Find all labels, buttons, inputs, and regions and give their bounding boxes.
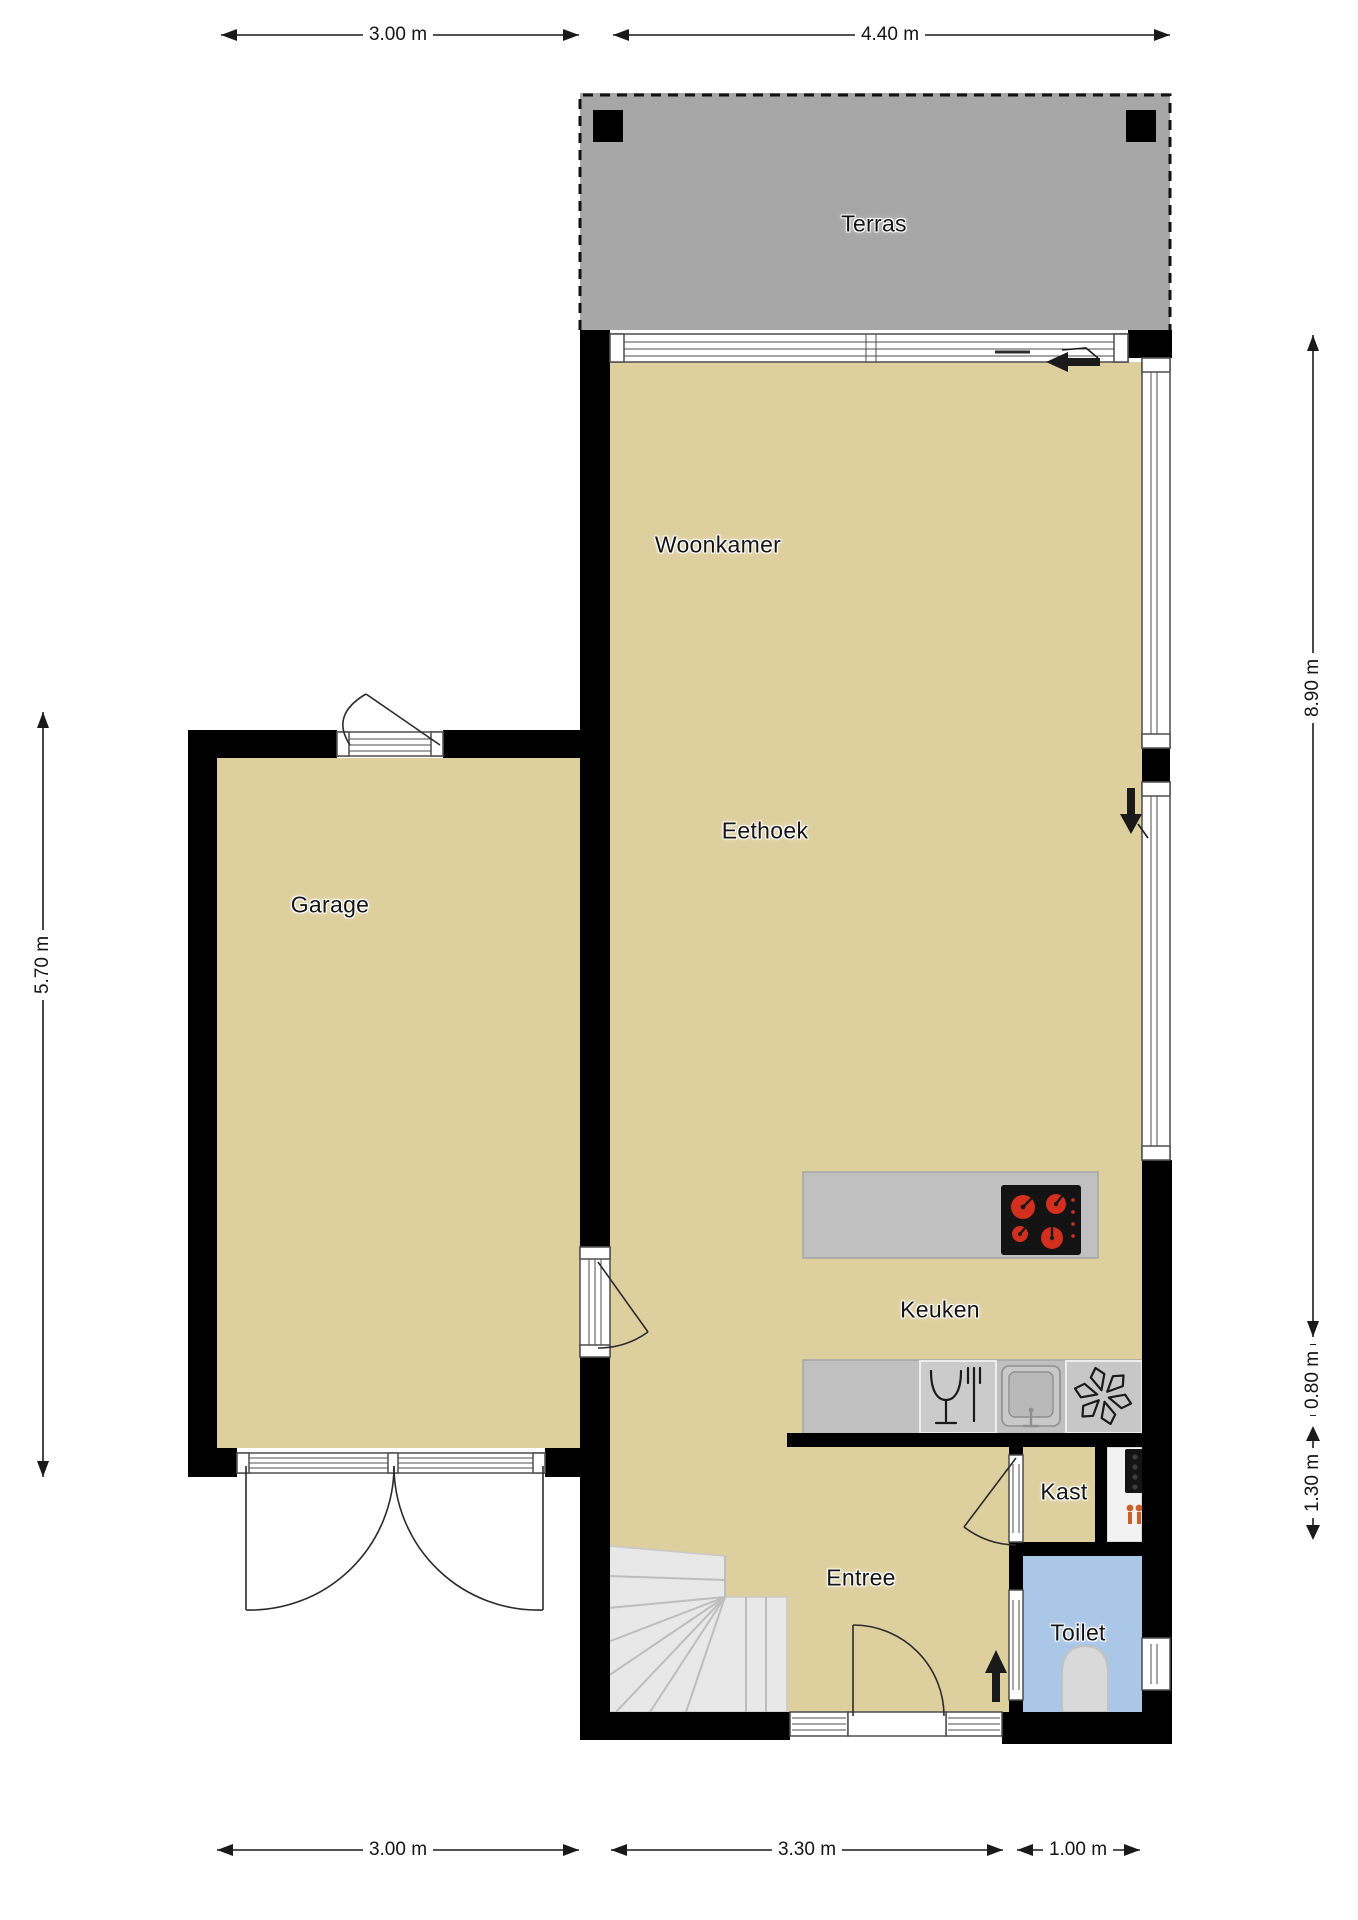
garage-back-door [337, 694, 443, 756]
room-label-keuken: Keuken [900, 1297, 980, 1324]
dim-bottom-mid: 3.30 m [772, 1839, 842, 1861]
garage-double-door [237, 1453, 545, 1610]
dim-top-left: 3.00 m [363, 24, 433, 46]
sliding-door-window [610, 334, 1128, 362]
right-window-upper [1142, 358, 1170, 748]
entree-window-left [790, 1712, 848, 1736]
dim-bottom-right: 1.00 m [1043, 1839, 1113, 1861]
entree-window-right [946, 1712, 1002, 1736]
room-label-eethoek: Eethoek [722, 818, 809, 845]
dim-right-130: 1.30 m [1302, 1448, 1324, 1518]
room-label-kast: Kast [1040, 1479, 1087, 1506]
dim-right-080: 0.80 m [1302, 1345, 1324, 1415]
floor-plan: Terras Woonkamer Eethoek Garage Keuken K… [0, 0, 1358, 1920]
dim-bottom-left: 3.00 m [363, 1839, 433, 1861]
cooktop-icon [1001, 1185, 1081, 1255]
main-floor [610, 362, 1142, 1712]
garage-floor [217, 758, 580, 1448]
boiler-icon [1125, 1449, 1144, 1493]
floor-plan-drawing [0, 0, 1358, 1920]
room-label-toilet: Toilet [1050, 1620, 1106, 1647]
room-label-entree: Entree [826, 1565, 896, 1592]
sink-icon [1002, 1366, 1060, 1426]
kitchen-counter [803, 1360, 1142, 1434]
room-label-woonkamer: Woonkamer [655, 532, 781, 559]
toilet-window [1142, 1638, 1170, 1690]
toilet-icon [1062, 1646, 1108, 1712]
toilet-door [1009, 1590, 1023, 1700]
dim-top-right: 4.40 m [855, 24, 925, 46]
room-label-garage: Garage [291, 892, 370, 919]
dim-right-890: 8.90 m [1302, 653, 1324, 723]
right-window-lower [1142, 782, 1170, 1160]
dim-left: 5.70 m [32, 930, 54, 1000]
room-label-terras: Terras [841, 211, 907, 238]
